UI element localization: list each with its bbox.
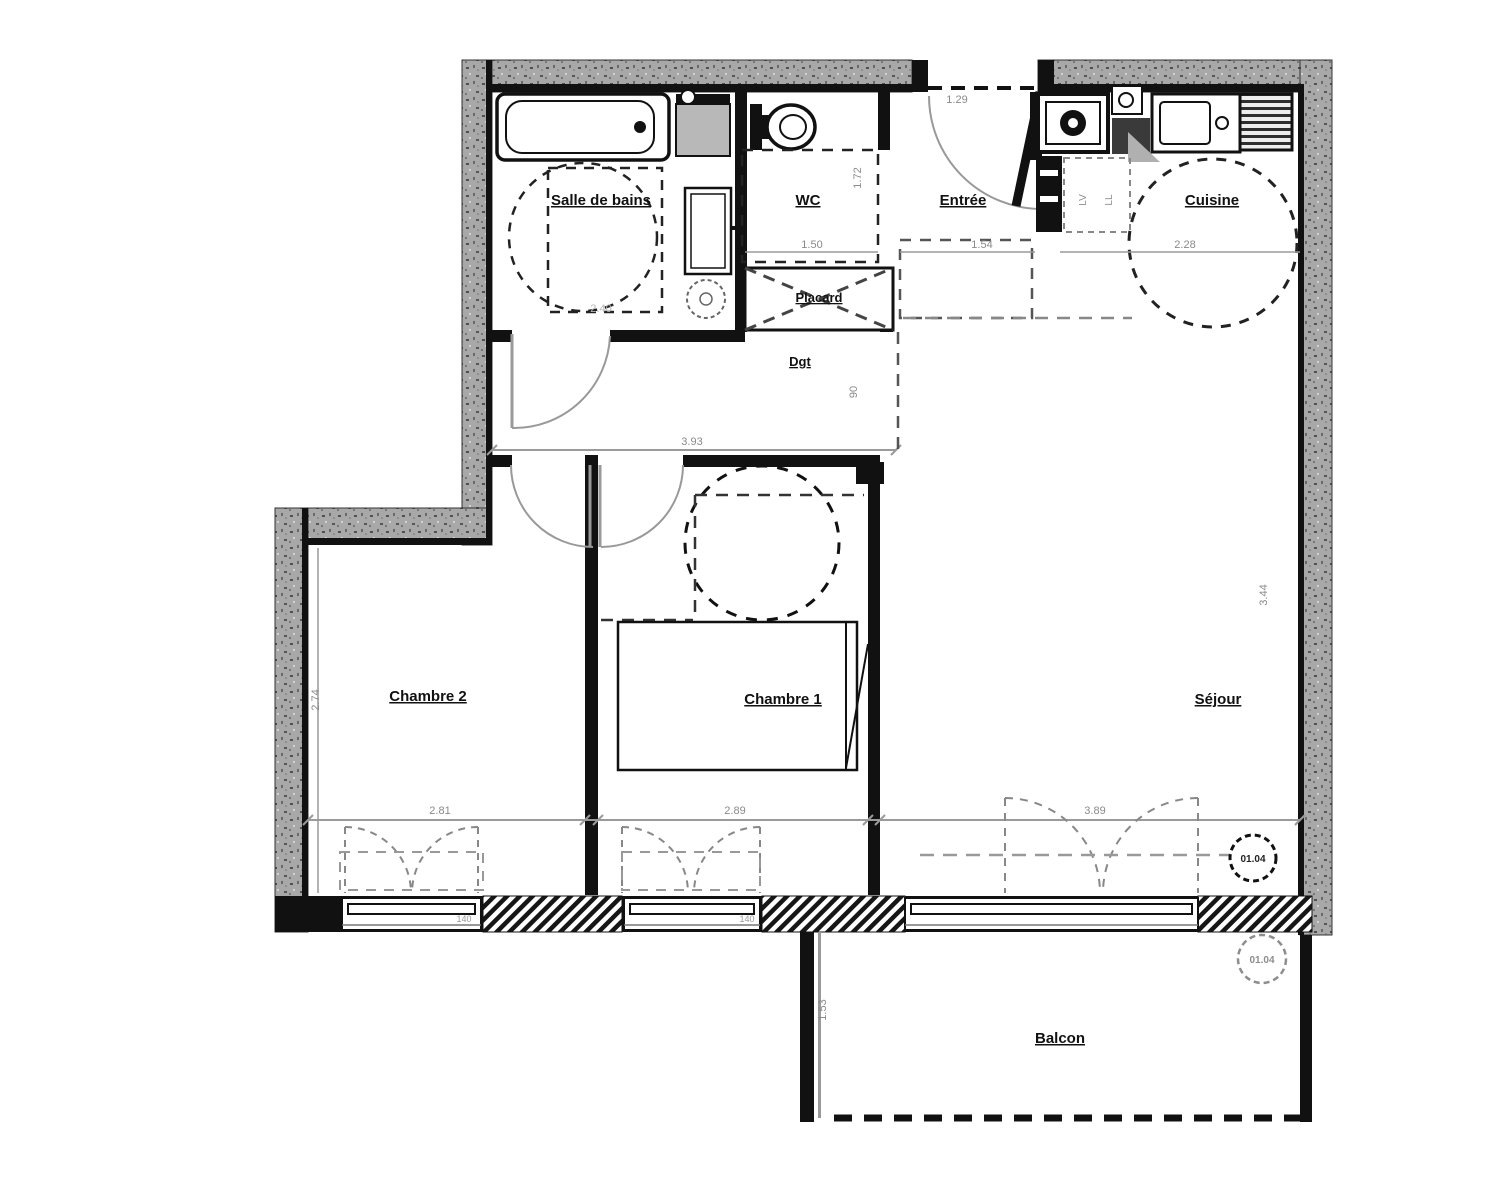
kitchen-sink — [1152, 94, 1240, 152]
chambre1-window-swing — [622, 827, 760, 893]
dim-sejour-height: 3.44 — [1258, 584, 1270, 605]
label-chambre1: Chambre 1 — [744, 691, 822, 708]
interior-walls — [492, 92, 1042, 895]
unit-badge-balcony-label: 01.04 — [1249, 955, 1274, 966]
dim-wc-height: 1.72 — [852, 167, 864, 188]
lower-dim-line — [303, 815, 1305, 825]
dim-window-chambre2: 140 — [456, 914, 471, 924]
appliance-label-lv: LV — [1078, 194, 1089, 206]
kitchen-column — [1036, 156, 1062, 232]
dim-sdb-width: 2.40 — [590, 303, 611, 315]
appliance-zone: LV LL — [1064, 158, 1130, 232]
dim-chambre1-width: 2.89 — [724, 805, 745, 817]
label-dgt: Dgt — [789, 354, 811, 369]
dim-chambre2-width: 2.81 — [429, 805, 450, 817]
bathroom-door-swing — [512, 334, 610, 428]
dim-window-chambre1: 140 — [739, 914, 754, 924]
label-cuisine: Cuisine — [1185, 192, 1239, 209]
dim-cuisine-width: 2.28 — [1174, 239, 1195, 251]
label-chambre2: Chambre 2 — [389, 688, 467, 705]
unit-badge-balcony: 01.04 — [1238, 935, 1286, 983]
floorplan-page: LV LL — [0, 0, 1500, 1184]
dim-sejour-width: 3.89 — [1084, 805, 1105, 817]
kitchen-drainer — [1240, 94, 1292, 150]
chambre1-door-swing — [600, 465, 683, 547]
shower-unit — [676, 90, 730, 156]
appliance-label-ll: LL — [1104, 194, 1115, 206]
dim-dgt-door: 90 — [848, 386, 860, 398]
chambre2-door-swing — [511, 465, 593, 547]
label-sejour: Séjour — [1195, 691, 1242, 708]
unit-badge: 01.04 — [1230, 835, 1276, 881]
window-sejour — [905, 898, 1198, 930]
dim-wc-width: 1.50 — [801, 239, 822, 251]
label-wc: WC — [796, 192, 821, 209]
dim-dgt-width: 3.93 — [681, 436, 702, 448]
unit-badge-label: 01.04 — [1240, 854, 1265, 865]
bed — [618, 622, 868, 770]
bathtub — [497, 94, 669, 160]
balcony — [800, 932, 1312, 1122]
label-placard: Placard — [796, 290, 843, 305]
bathroom-clearance — [509, 163, 662, 312]
dim-balcon-height: 1.53 — [817, 999, 829, 1020]
dimension-labels: 1.29 1.72 1.50 1.54 2.28 2.40 3.93 90 2.… — [310, 94, 1270, 1021]
label-balcon: Balcon — [1035, 1030, 1085, 1047]
dim-chambre2-height: 2.74 — [310, 689, 322, 710]
kitchen-clearance-circle — [1129, 159, 1297, 327]
pedestal-sink-icon — [687, 280, 725, 318]
dim-entree-top: 1.29 — [946, 94, 967, 106]
bottom-wall — [275, 896, 1312, 932]
chambre2-window-swing — [340, 827, 483, 893]
sejour-window-swing — [920, 798, 1240, 893]
floorplan-drawing: LV LL — [0, 0, 1500, 1184]
kitchen-hob — [1038, 94, 1108, 152]
dim-entree-width: 1.54 — [971, 239, 992, 251]
label-salle-de-bains: Salle de bains — [551, 192, 651, 209]
label-entree: Entrée — [940, 192, 987, 209]
toilet-icon — [750, 104, 815, 150]
